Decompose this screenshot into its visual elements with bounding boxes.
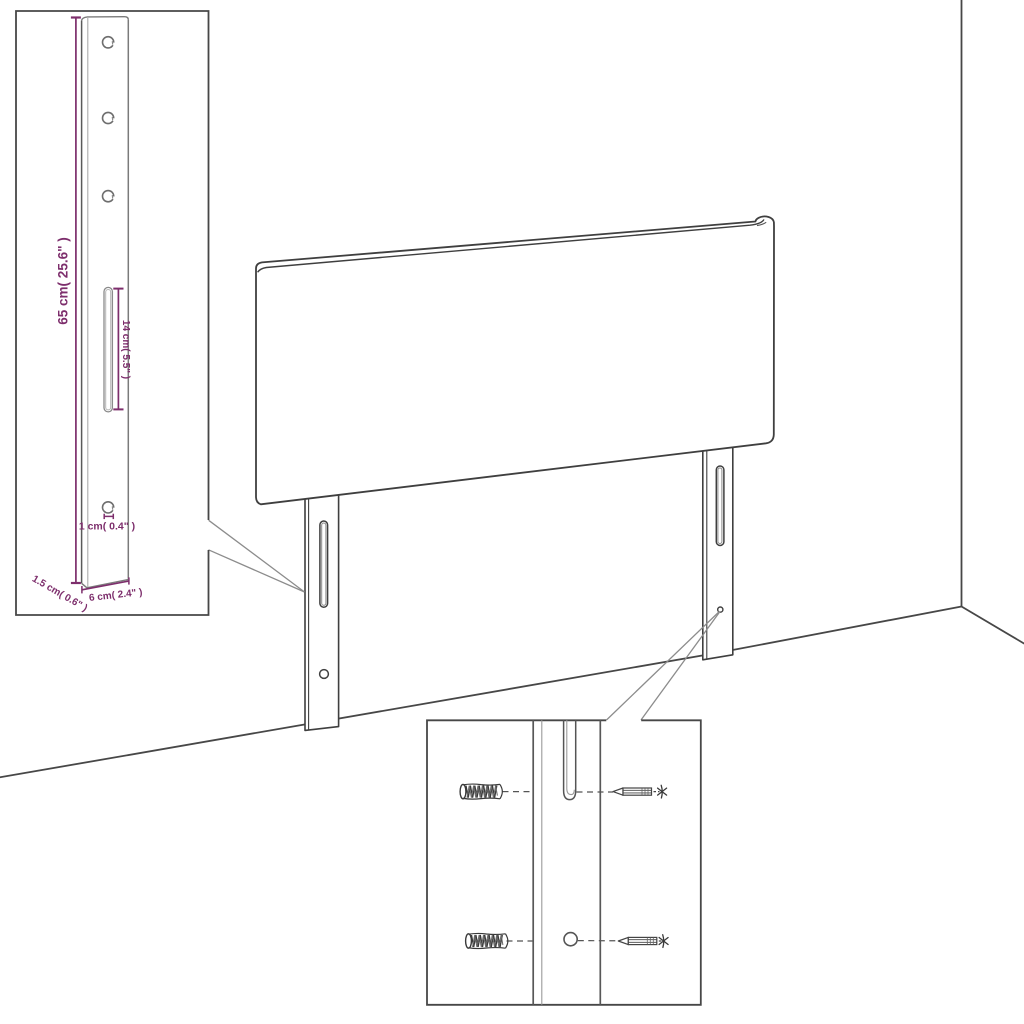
svg-text:1 cm( 0.4" ): 1 cm( 0.4" )	[79, 521, 135, 533]
svg-text:14 cm( 5.5" ): 14 cm( 5.5" )	[120, 320, 131, 379]
svg-text:65 cm( 25.6" ): 65 cm( 25.6" )	[56, 237, 71, 324]
